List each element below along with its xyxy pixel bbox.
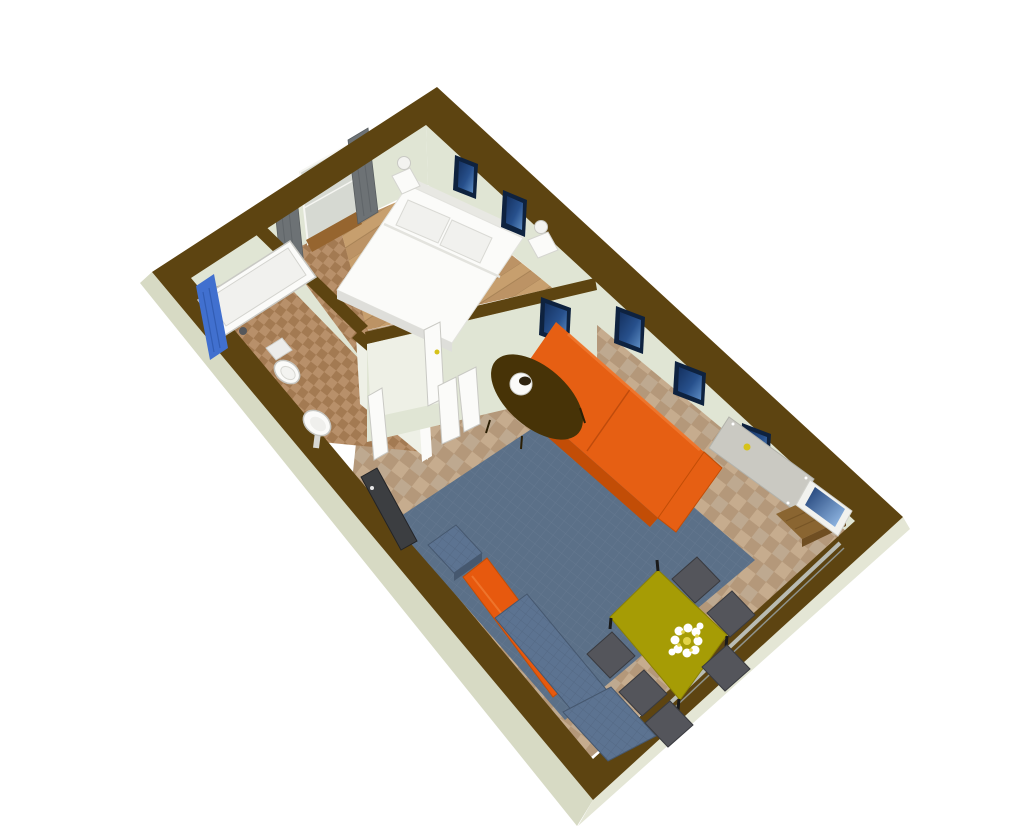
lamp-opening xyxy=(519,377,531,386)
table-lamp[interactable] xyxy=(535,221,548,234)
hall-door-left[interactable] xyxy=(438,377,460,444)
tv-indicator xyxy=(370,486,374,490)
entrance-door-handle xyxy=(744,444,751,451)
bathtub-faucet xyxy=(239,327,247,335)
door-handle xyxy=(435,350,440,355)
table-lamp[interactable] xyxy=(398,157,411,170)
door-hinge xyxy=(732,423,735,426)
door-hinge xyxy=(805,477,808,480)
floor-plan-3d-view xyxy=(0,0,1024,834)
floor-plan-canvas xyxy=(0,0,1024,834)
door-hinge xyxy=(787,502,790,505)
